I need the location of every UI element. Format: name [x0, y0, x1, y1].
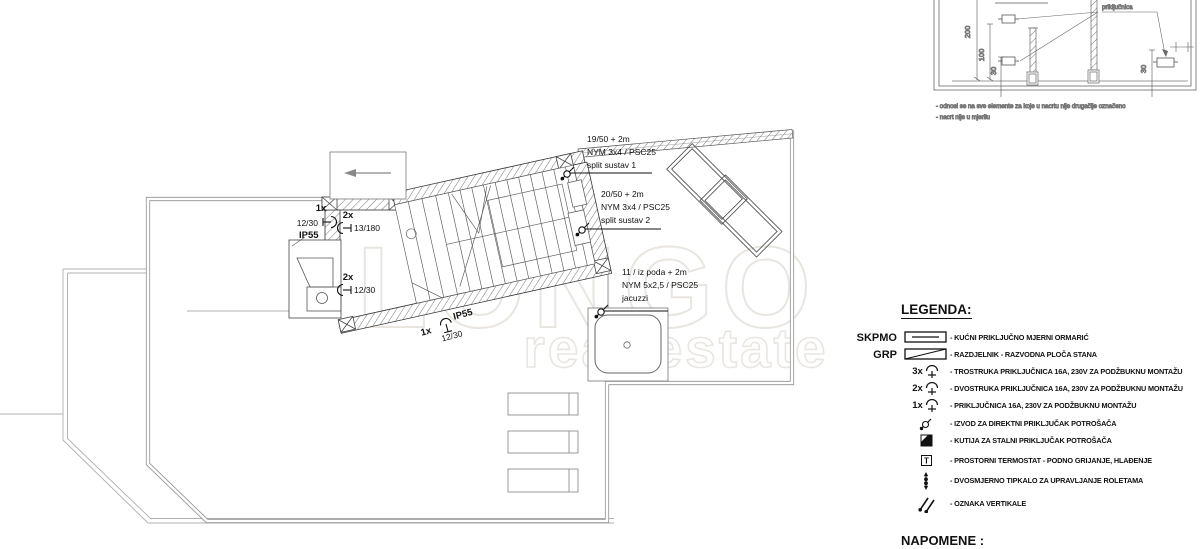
vertical-mark-icon: [902, 495, 950, 513]
legend-key-skpmo: SKPMO: [845, 332, 902, 344]
ann3-line1: 11 / iz poda + 2m: [622, 267, 687, 277]
legend-text: - KUĆNI PRIKLJUČNO MJERNI ORMARIĆ: [950, 333, 1197, 342]
legend-row-skpmo: SKPMO - KUĆNI PRIKLJUČNO MJERNI ORMARIĆ: [845, 329, 1197, 346]
meter-cabinet-icon: [902, 331, 950, 344]
legend-text: - IZVOD ZA DIREKTNI PRIKLJUČAK POTROŠAČA: [950, 419, 1197, 428]
legend-text: - DVOSTRUKA PRIKLJUČNICA 16A, 230V ZA PO…: [950, 384, 1197, 393]
ann1-line3: split sustav 1: [587, 160, 636, 170]
blueprint-canvas: LONGO real estate: [0, 0, 1200, 549]
dim-30-left: 30: [989, 67, 998, 75]
socket1-dim: 12/30: [297, 218, 319, 228]
detail-label-prikljucnica: priključnica: [1102, 4, 1133, 11]
thermostat-letter: T: [924, 456, 929, 465]
ann3-line3: jacuzzi: [621, 293, 648, 303]
legend-row-direct-outlet: - IZVOD ZA DIREKTNI PRIKLJUČAK POTROŠAČA: [845, 414, 1197, 431]
direct-outlet-icon: [902, 416, 950, 431]
legend-row-thermostat: T - PROSTORNI TERMOSTAT - PODNO GRIJANJE…: [845, 452, 1197, 469]
loungers: [508, 393, 578, 492]
legend-key-grp: GRP: [845, 349, 902, 361]
dim-200: 200: [963, 26, 972, 39]
ann2-line1: 20/50 + 2m: [601, 189, 644, 199]
legend-text: - OZNAKA VERTIKALE: [950, 499, 1197, 508]
ann1-line1: 19/50 + 2m: [587, 134, 630, 144]
distribution-board-icon: [902, 348, 950, 361]
legend-text: - RAZDJELNIK - RAZVODNA PLOČA STANA: [950, 350, 1197, 359]
dim-30-right: 30: [1139, 65, 1148, 73]
legend-title: LEGENDA:: [901, 302, 972, 319]
socket2-count: 2x: [343, 210, 354, 221]
socket-icon: 3x: [902, 365, 950, 379]
entrance-box: [330, 152, 406, 199]
section-detail: priključnica 200 100 30 30 - odnosi se n…: [934, 0, 1196, 121]
socket1-ip: IP55: [299, 230, 319, 241]
detail-note-2: - nacrt nije u mjerilu: [936, 114, 991, 121]
legend-row-grp: GRP - RAZDJELNIK - RAZVODNA PLOČA STANA: [845, 346, 1197, 363]
shutter-button-icon: [902, 472, 950, 490]
legend: SKPMO - KUĆNI PRIKLJUČNO MJERNI ORMARIĆ …: [845, 329, 1197, 512]
legend-count: 3x: [912, 366, 923, 377]
legend-text: - TROSTRUKA PRIKLJUČNICA 16A, 230V ZA PO…: [950, 367, 1197, 376]
legend-text: - PRIKLJUČNICA 16A, 230V ZA PODŽBUKNU MO…: [950, 401, 1197, 410]
ann2-line3: split sustav 2: [601, 215, 650, 225]
detail-note-1: - odnosi se na sve elemente za koje u na…: [936, 103, 1126, 110]
ann2-line2: NYM 3x4 / PSC25: [601, 202, 670, 212]
legend-row-vertical-mark: - OZNAKA VERTIKALE: [845, 495, 1197, 512]
legend-row-double-socket: 2x - DVOSTRUKA PRIKLJUČNICA 16A, 230V ZA…: [845, 380, 1197, 397]
junction-box-icon: [902, 434, 950, 447]
socket-icon: 2x: [902, 382, 950, 396]
watermark-line2: real estate: [523, 317, 828, 379]
legend-count: 2x: [912, 383, 923, 394]
napomene-heading: NAPOMENE :: [901, 533, 984, 548]
legend-text: - DVOSMJERNO TIPKALO ZA UPRAVLJANJE ROLE…: [950, 476, 1197, 485]
socket3-dim: 12/30: [354, 285, 376, 295]
socket2-dim: 13/180: [354, 223, 380, 233]
ann1-line2: NYM 3x4 / PSC25: [587, 147, 656, 157]
legend-text: - KUTIJA ZA STALNI PRIKLJUČAK POTROŠAČA: [950, 436, 1197, 445]
legend-row-junction-box: - KUTIJA ZA STALNI PRIKLJUČAK POTROŠAČA: [845, 432, 1197, 449]
legend-row-shutter-button: - DVOSMJERNO TIPKALO ZA UPRAVLJANJE ROLE…: [845, 472, 1197, 489]
annotation-split1: 19/50 + 2m NYM 3x4 / PSC25 split sustav …: [587, 134, 656, 170]
legend-row-single-socket: 1x - PRIKLJUČNICA 16A, 230V ZA PODŽBUKNU…: [845, 397, 1197, 414]
legend-text: - PROSTORNI TERMOSTAT - PODNO GRIJANJE, …: [950, 456, 1197, 465]
dim-100: 100: [977, 49, 986, 62]
legend-row-triple-socket: 3x - TROSTRUKA PRIKLJUČNICA 16A, 230V ZA…: [845, 363, 1197, 380]
annotation-split2: 20/50 + 2m NYM 3x4 / PSC25 split sustav …: [601, 189, 670, 225]
socket-icon: 1x: [902, 399, 950, 413]
legend-count: 1x: [912, 400, 923, 411]
socket1-count: 1x: [316, 203, 327, 214]
socket3-count: 2x: [343, 272, 354, 283]
utility-closet: [289, 237, 341, 318]
thermostat-icon: T: [902, 454, 950, 467]
ann3-line2: NYM 5x2,5 / PSC25: [622, 280, 698, 290]
